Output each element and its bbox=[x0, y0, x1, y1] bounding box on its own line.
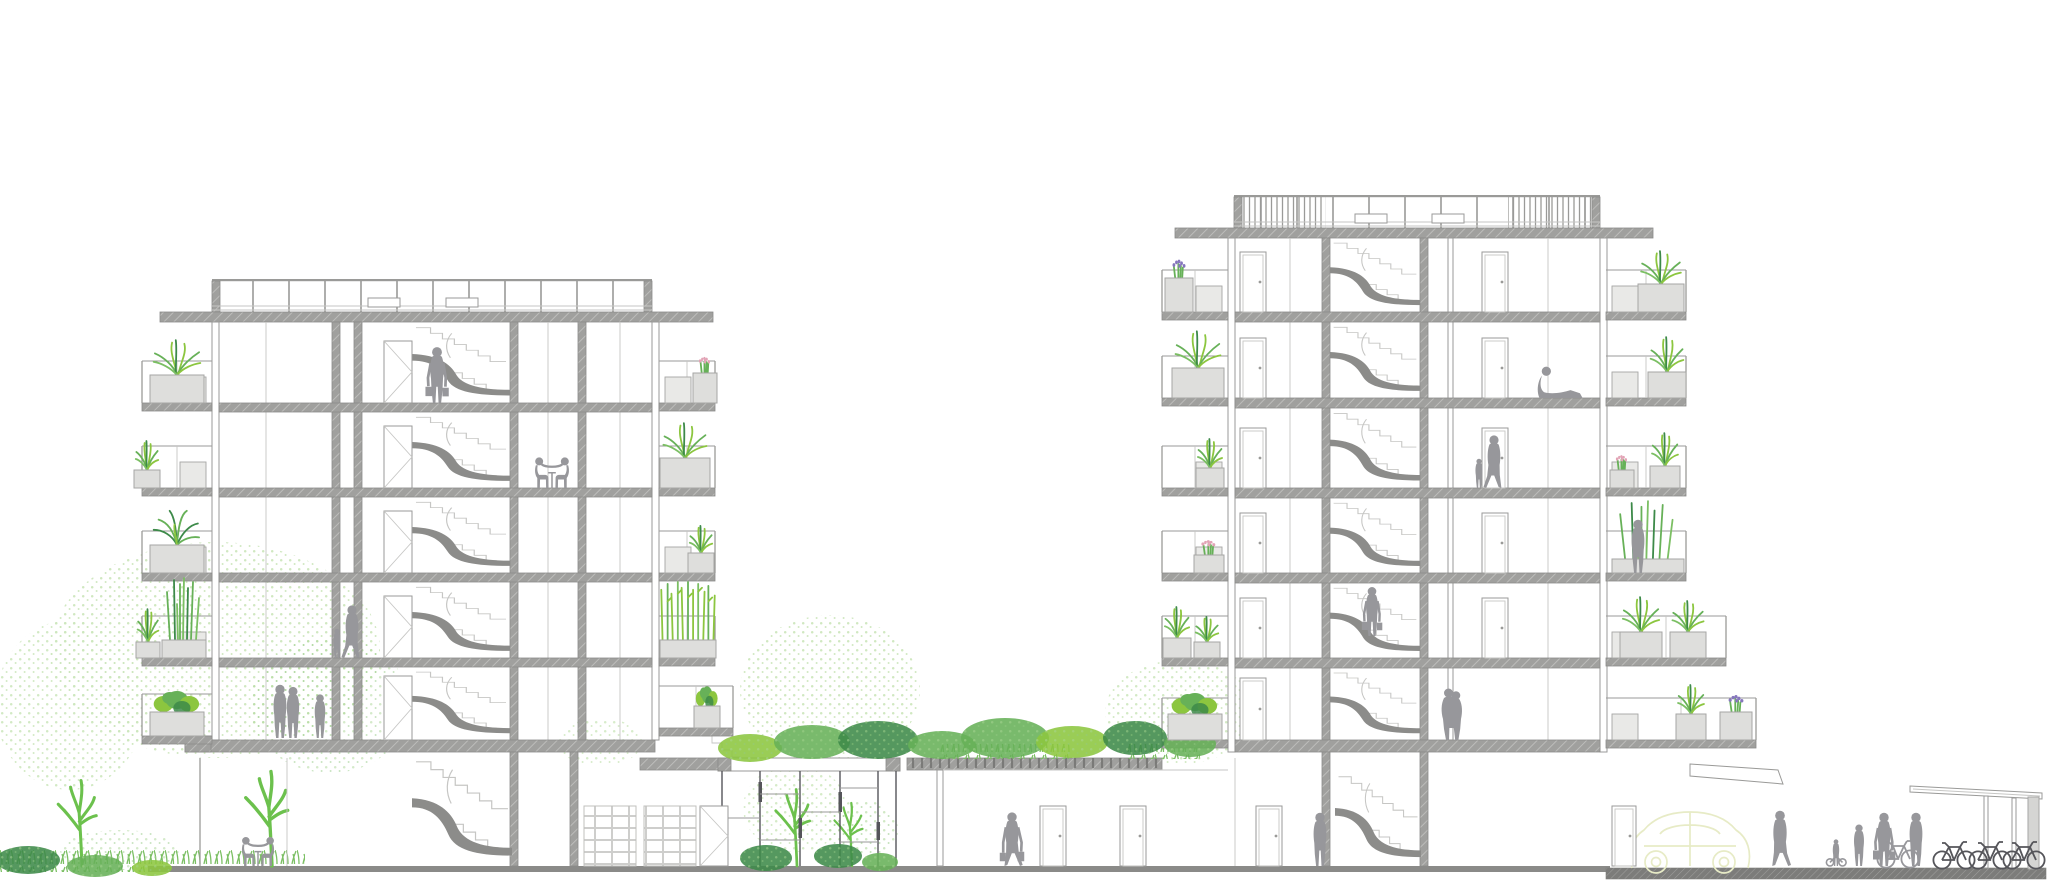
exterior-wall bbox=[212, 322, 219, 740]
planter-box bbox=[1670, 632, 1706, 658]
door bbox=[700, 806, 728, 866]
planter-box bbox=[150, 712, 204, 736]
door bbox=[1482, 598, 1508, 658]
grass-planter bbox=[1648, 337, 1686, 398]
staircase-flight bbox=[1335, 777, 1421, 857]
planter-box bbox=[660, 458, 710, 488]
child-on-balance-bike bbox=[1826, 839, 1846, 866]
architectural-section-canvas bbox=[0, 0, 2048, 886]
roof-slab bbox=[160, 312, 713, 322]
balcony-slab bbox=[142, 403, 212, 411]
bamboo-planter bbox=[660, 582, 716, 658]
door bbox=[1240, 252, 1266, 312]
shrub bbox=[961, 718, 1049, 758]
door-handle bbox=[1259, 367, 1262, 370]
door-handle bbox=[1259, 708, 1262, 711]
grass-planter bbox=[150, 340, 204, 403]
privacy-screen bbox=[1612, 714, 1638, 740]
grass-planter bbox=[1676, 685, 1706, 740]
balcony-slab bbox=[142, 736, 212, 744]
staircase-flight bbox=[1330, 414, 1420, 481]
door bbox=[384, 341, 412, 403]
staircase-flight bbox=[412, 587, 510, 651]
reeds-planter bbox=[1612, 501, 1684, 573]
planter-box bbox=[1194, 642, 1220, 658]
podium-step-slab bbox=[640, 758, 720, 770]
balcony-slab bbox=[1162, 658, 1228, 666]
staircase-flight bbox=[412, 762, 512, 856]
roof-railing-dense bbox=[1234, 197, 1326, 228]
shelter-panel bbox=[2028, 797, 2039, 869]
balcony-slab bbox=[1606, 488, 1686, 496]
roof-railing-dense bbox=[1508, 197, 1600, 228]
door bbox=[1120, 806, 1146, 866]
door-handle bbox=[1501, 627, 1504, 630]
plant bbox=[663, 423, 706, 458]
plant bbox=[1173, 260, 1186, 278]
plant bbox=[690, 526, 712, 553]
planter-box bbox=[134, 470, 160, 488]
privacy-screen bbox=[665, 377, 691, 403]
person-walking-street bbox=[1772, 811, 1791, 866]
planter-box bbox=[1165, 278, 1193, 312]
person-walking-with-bags-hall bbox=[1000, 812, 1024, 866]
people-layer bbox=[242, 347, 1922, 866]
door-handle bbox=[1275, 835, 1278, 838]
door-handle bbox=[1259, 627, 1262, 630]
door-handle bbox=[1059, 835, 1062, 838]
planter-box bbox=[150, 375, 204, 403]
door bbox=[1240, 598, 1266, 658]
door bbox=[384, 676, 412, 740]
teen-standing-street bbox=[1854, 825, 1864, 866]
balcony-slab bbox=[659, 728, 733, 736]
staircase-flight bbox=[1330, 327, 1420, 391]
planter-box bbox=[1172, 368, 1224, 398]
shrub bbox=[132, 860, 172, 876]
balcony-slab bbox=[1606, 658, 1726, 666]
two-people-at-table-floor4 bbox=[535, 457, 569, 488]
door-handle bbox=[1259, 457, 1262, 460]
roof-skylight bbox=[368, 298, 400, 307]
shrub bbox=[1103, 721, 1167, 755]
plant bbox=[699, 357, 710, 373]
door-handle bbox=[1501, 542, 1504, 545]
shrub bbox=[838, 721, 918, 759]
section-drawing bbox=[0, 0, 2048, 886]
planter-box bbox=[1620, 632, 1662, 658]
plant bbox=[1672, 601, 1703, 632]
shrub-planter bbox=[694, 686, 720, 728]
plant bbox=[154, 511, 199, 545]
door-handle bbox=[1259, 542, 1262, 545]
plant bbox=[136, 441, 158, 470]
door-handle bbox=[1259, 281, 1262, 284]
plant bbox=[1641, 251, 1681, 284]
shrub bbox=[862, 853, 898, 871]
staircase-flight bbox=[1330, 503, 1420, 566]
plant bbox=[1623, 597, 1659, 632]
person-descending-stairs bbox=[1362, 587, 1382, 636]
planter-box bbox=[136, 642, 160, 658]
parked-car bbox=[1631, 812, 1750, 873]
roof-skylight bbox=[1355, 214, 1387, 223]
adult-with-bag-street bbox=[1873, 813, 1895, 866]
bicycle bbox=[1933, 842, 1974, 869]
shrub bbox=[718, 734, 782, 762]
door bbox=[1240, 428, 1266, 488]
grass-planter bbox=[1163, 607, 1191, 658]
privacy-screen bbox=[1612, 372, 1638, 398]
right-building-roof bbox=[1175, 195, 1653, 238]
door bbox=[1482, 513, 1508, 573]
plant bbox=[696, 686, 718, 708]
balcony-slab bbox=[1606, 573, 1686, 581]
privacy-screen bbox=[665, 547, 691, 573]
grass-planter bbox=[1650, 433, 1680, 488]
balcony-slab bbox=[659, 573, 715, 581]
plant bbox=[1651, 337, 1684, 372]
balcony-slab bbox=[142, 658, 212, 666]
tree-foliage bbox=[0, 620, 145, 790]
planter-box bbox=[162, 640, 206, 658]
planter-box bbox=[1650, 466, 1680, 488]
door bbox=[384, 511, 412, 573]
balcony-slab bbox=[1162, 573, 1228, 581]
left-building-roof bbox=[160, 279, 713, 322]
planter-box bbox=[1610, 470, 1634, 488]
balcony-slab bbox=[1606, 398, 1686, 406]
balcony-slab bbox=[1162, 398, 1228, 406]
fpink-planter bbox=[1194, 540, 1224, 573]
door-handle bbox=[1139, 835, 1142, 838]
courtyard-hall bbox=[937, 770, 1228, 866]
grass-planter bbox=[1670, 601, 1706, 658]
roof-skylight bbox=[1432, 214, 1464, 223]
grass-planter bbox=[688, 526, 714, 573]
shop-shelving bbox=[584, 806, 636, 866]
plant bbox=[1176, 331, 1221, 368]
stair-core-wall bbox=[510, 322, 518, 740]
grass-planter bbox=[134, 441, 160, 488]
person-with-bags-stair-landing bbox=[425, 347, 448, 403]
door-handle bbox=[1501, 281, 1504, 284]
shrub bbox=[740, 845, 792, 871]
staircase-flight bbox=[412, 328, 510, 396]
plant bbox=[1165, 607, 1189, 638]
staircase-flight bbox=[1330, 243, 1420, 305]
interior-wall bbox=[354, 322, 362, 740]
door bbox=[1482, 252, 1508, 312]
person-holding-bicycle bbox=[1910, 813, 1923, 866]
balcony-slab bbox=[142, 488, 212, 496]
planter-box bbox=[1194, 555, 1224, 573]
planter-box bbox=[688, 553, 714, 573]
planter-box bbox=[1612, 559, 1684, 573]
grass-planter bbox=[1194, 617, 1220, 658]
privacy-screen bbox=[1612, 286, 1638, 312]
planter-box bbox=[1163, 638, 1191, 658]
staircase-flight bbox=[412, 417, 510, 481]
podium-slab bbox=[185, 740, 655, 752]
grass-planter bbox=[1620, 597, 1662, 658]
fern-planter bbox=[150, 511, 204, 573]
door-handle bbox=[1629, 835, 1632, 838]
balcony-slab bbox=[1606, 740, 1756, 748]
balcony-slab bbox=[659, 658, 715, 666]
staircase-flight bbox=[412, 502, 510, 566]
balcony-slab bbox=[1162, 488, 1228, 496]
shrub bbox=[67, 855, 123, 877]
fpink-planter bbox=[693, 357, 717, 403]
staircase-flight bbox=[1330, 673, 1420, 733]
grass-planter bbox=[660, 423, 710, 488]
planter-box bbox=[1196, 468, 1224, 488]
planter-box bbox=[693, 373, 717, 403]
bicycles-layer bbox=[1877, 841, 2044, 869]
exterior-wall bbox=[1228, 238, 1235, 752]
door bbox=[1040, 806, 1066, 866]
door bbox=[1240, 513, 1266, 573]
plant bbox=[1620, 501, 1672, 559]
door bbox=[384, 426, 412, 488]
roof-railing-rail bbox=[1234, 195, 1600, 197]
balcony-slab bbox=[142, 573, 212, 581]
roof-railing-rail bbox=[212, 279, 652, 281]
planter-box bbox=[1168, 714, 1222, 740]
door bbox=[1240, 338, 1266, 398]
fpurple-planter bbox=[1720, 695, 1752, 740]
grass-planter bbox=[1172, 331, 1224, 398]
roof-slab bbox=[1175, 228, 1653, 238]
fpurple-planter bbox=[1165, 260, 1193, 312]
entrance-awning bbox=[1690, 764, 1783, 784]
interior-wall bbox=[332, 322, 340, 740]
plant bbox=[661, 582, 714, 640]
plant bbox=[1678, 685, 1704, 714]
hall-wall bbox=[937, 770, 943, 866]
planter-box bbox=[1676, 714, 1706, 740]
shrub bbox=[1036, 726, 1108, 758]
privacy-screen bbox=[1196, 286, 1222, 312]
balcony-slab bbox=[659, 488, 715, 496]
balcony-slab bbox=[1606, 312, 1686, 320]
planter-box bbox=[660, 640, 716, 658]
roof-railing-posts bbox=[212, 281, 652, 312]
balcony-slab bbox=[1162, 312, 1228, 320]
plant bbox=[1196, 617, 1218, 642]
shrub bbox=[814, 844, 862, 868]
grass-planter bbox=[1638, 251, 1684, 312]
planter-box bbox=[1638, 284, 1684, 312]
sidewalk bbox=[1606, 868, 2046, 879]
door bbox=[1482, 338, 1508, 398]
planter-box bbox=[1648, 372, 1686, 398]
door bbox=[1240, 678, 1266, 740]
door bbox=[1256, 806, 1282, 866]
planter-box bbox=[150, 545, 204, 573]
fpink-planter bbox=[1610, 455, 1634, 488]
interior-wall bbox=[578, 322, 586, 740]
door-handle bbox=[1501, 457, 1504, 460]
planter-box bbox=[1720, 712, 1752, 740]
balcony-slab bbox=[659, 403, 715, 411]
door bbox=[1612, 806, 1636, 866]
roof-skylight bbox=[446, 298, 478, 307]
planter-box bbox=[694, 706, 720, 728]
shop-shelving bbox=[644, 806, 696, 866]
plant bbox=[1652, 433, 1678, 466]
staircase-flight bbox=[412, 672, 510, 733]
privacy-screen bbox=[180, 462, 206, 488]
person-reclining-floor5 bbox=[1538, 367, 1583, 398]
exterior-wall bbox=[652, 322, 659, 740]
door bbox=[384, 596, 412, 658]
door-handle bbox=[1501, 367, 1504, 370]
